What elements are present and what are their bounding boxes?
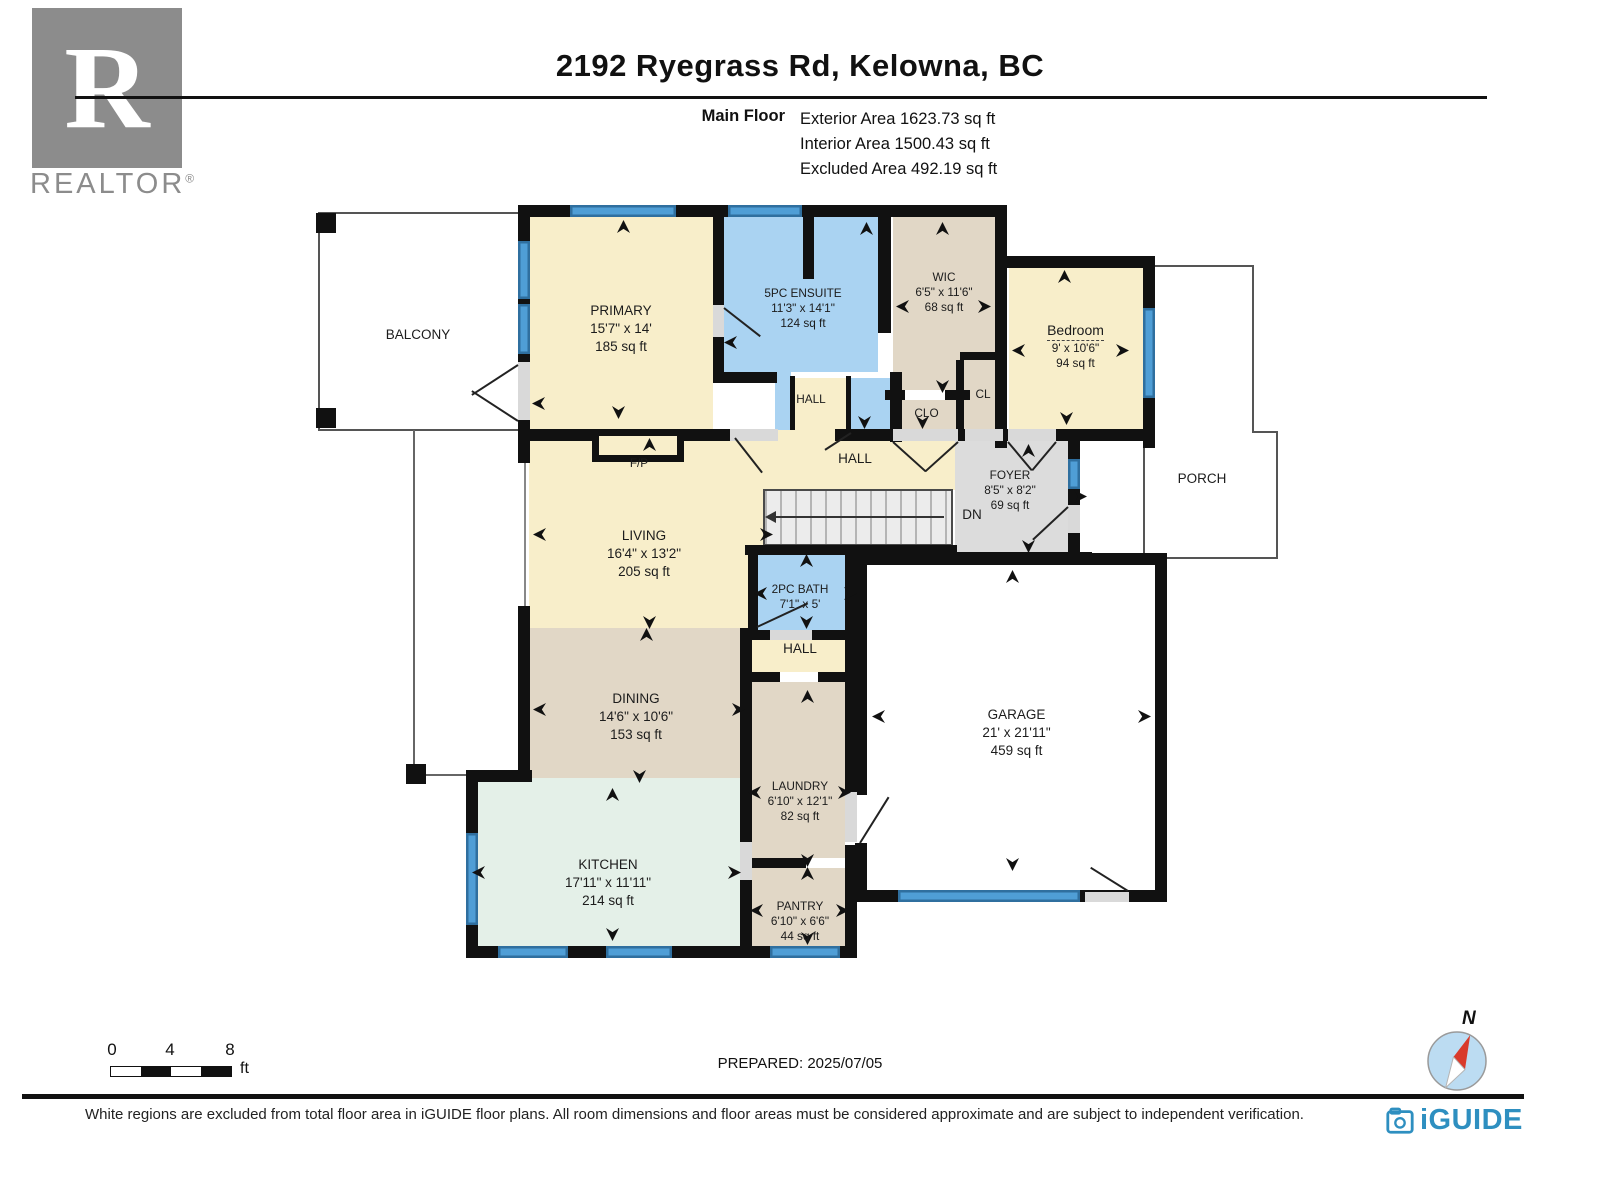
door-niche xyxy=(1008,429,1056,441)
window xyxy=(518,241,530,299)
room-label-hall-lower: HALL xyxy=(748,640,852,658)
wall-segment xyxy=(855,565,867,795)
realtor-logo: R xyxy=(32,8,182,168)
scale-bar xyxy=(110,1066,232,1077)
scale-tick-4: 4 xyxy=(155,1040,185,1060)
realtor-r-glyph: R xyxy=(64,20,149,156)
compass-icon xyxy=(1419,1020,1497,1098)
wall-segment xyxy=(518,441,530,463)
footer-divider xyxy=(22,1094,1524,1099)
room-label-hall-main: HALL xyxy=(820,450,890,468)
room-label-cl: CL xyxy=(962,387,1004,402)
porch-outline xyxy=(1143,265,1280,561)
stairs-dn-label: DN xyxy=(950,506,994,524)
door-niche xyxy=(770,630,812,640)
room-label-dining: DINING 14'6" x 10'6" 153 sq ft xyxy=(530,690,742,743)
balcony-post xyxy=(316,408,336,428)
room-label-balcony: BALCONY xyxy=(318,326,518,344)
room-label-ensuite: 5PC ENSUITE 11'3" x 14'1" 124 sq ft xyxy=(724,286,882,331)
wall-segment xyxy=(803,217,814,279)
scale-unit: ft xyxy=(240,1060,249,1078)
window xyxy=(1143,308,1155,398)
wall-segment xyxy=(885,390,905,400)
stair-arrow-icon xyxy=(765,511,776,523)
wall-segment xyxy=(855,843,867,890)
wall-segment xyxy=(748,858,806,868)
window xyxy=(770,946,840,958)
room-fill xyxy=(778,429,835,441)
room-label-wic: WIC 6'5" x 11'6" 68 sq ft xyxy=(893,270,995,315)
room-label-bath: 2PC BATH 7'1" x 5' xyxy=(750,582,850,612)
iguide-icon xyxy=(1385,1106,1415,1136)
door-niche xyxy=(965,429,1003,441)
area-summary: Exterior Area 1623.73 sq ft Interior Are… xyxy=(800,107,997,182)
room-label-laundry: LAUNDRY 6'10" x 12'1" 82 sq ft xyxy=(748,779,852,824)
room-label-primary: PRIMARY 15'7" x 14' 185 sq ft xyxy=(529,302,713,355)
door-niche xyxy=(518,362,530,420)
floor-plan-page: R REALTOR® 2192 Ryegrass Rd, Kelowna, BC… xyxy=(0,0,1600,1200)
wall-segment xyxy=(960,352,1007,360)
balcony-post xyxy=(406,764,426,784)
window xyxy=(728,205,802,217)
registered-mark-icon: ® xyxy=(185,171,197,185)
thin-wall-line xyxy=(524,463,526,608)
window xyxy=(466,833,478,925)
room-label-fireplace: F/P xyxy=(595,456,683,471)
interior-area: Interior Area 1500.43 sq ft xyxy=(800,132,997,157)
scale-tick-8: 8 xyxy=(215,1040,245,1060)
door-niche xyxy=(893,429,958,441)
iguide-logo: iGUIDE xyxy=(1385,1104,1523,1137)
prepared-date: PREPARED: 2025/07/05 xyxy=(650,1055,950,1072)
wall-segment xyxy=(997,256,1155,268)
room-fill xyxy=(752,682,845,858)
stair-direction-line xyxy=(772,516,944,518)
scale-tick-0: 0 xyxy=(97,1040,127,1060)
door-niche xyxy=(713,305,724,337)
lower-deck-outline xyxy=(413,430,475,778)
wall-segment xyxy=(466,770,532,782)
room-label-bedroom: Bedroom 9' x 10'6" 94 sq ft xyxy=(1008,322,1143,371)
window xyxy=(498,946,568,958)
footer-disclaimer: White regions are excluded from total fl… xyxy=(85,1106,1304,1123)
title-divider xyxy=(75,96,1487,99)
wall-segment xyxy=(713,217,724,305)
window xyxy=(898,890,1080,902)
window xyxy=(606,946,672,958)
page-title: 2192 Ryegrass Rd, Kelowna, BC xyxy=(300,48,1300,84)
room-fill xyxy=(851,378,890,430)
room-label-living: LIVING 16'4" x 13'2" 205 sq ft xyxy=(529,527,759,580)
door-niche xyxy=(1085,892,1129,902)
balcony-post xyxy=(316,213,336,233)
room-label-kitchen: KITCHEN 17'11" x 11'11" 214 sq ft xyxy=(478,856,738,909)
wall-segment xyxy=(713,372,777,383)
room-label-clo: CLO xyxy=(893,406,960,421)
exterior-area: Exterior Area 1623.73 sq ft xyxy=(800,107,997,132)
room-label-hall-upper: HALL xyxy=(782,392,840,407)
room-label-pantry: PANTRY 6'10" x 6'6" 44 sq ft xyxy=(748,899,852,944)
room-label-garage: GARAGE 21' x 21'11" 459 sq ft xyxy=(868,706,1165,759)
excluded-area: Excluded Area 492.19 sq ft xyxy=(800,157,997,182)
wall-segment xyxy=(518,606,530,776)
realtor-wordmark: REALTOR® xyxy=(30,168,197,201)
iguide-wordmark: iGUIDE xyxy=(1420,1104,1523,1137)
floor-label: Main Floor xyxy=(560,107,785,126)
wall-segment xyxy=(855,553,1167,565)
balcony-outline xyxy=(318,212,520,431)
wall-segment xyxy=(846,376,851,430)
window xyxy=(570,205,676,217)
wall-segment xyxy=(995,205,1007,448)
door-niche xyxy=(740,842,752,880)
room-label-porch: PORCH xyxy=(1143,470,1261,488)
